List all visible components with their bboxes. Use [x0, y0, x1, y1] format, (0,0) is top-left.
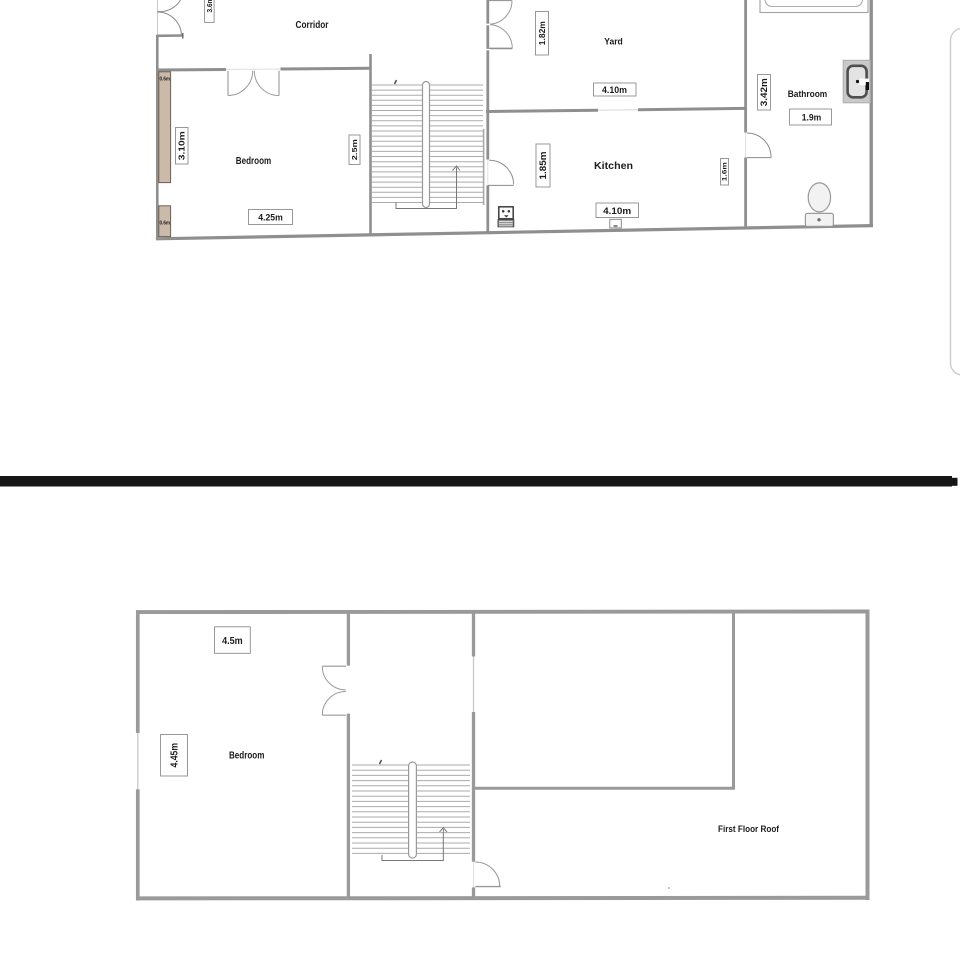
svg-text:1.6m: 1.6m	[723, 162, 729, 181]
svg-text:1.85m: 1.85m	[538, 152, 548, 180]
svg-text:Bedroom: Bedroom	[236, 156, 272, 167]
svg-text:2.5m: 2.5m	[352, 139, 359, 160]
svg-text:4.10m: 4.10m	[602, 85, 627, 95]
svg-text:3.42m: 3.42m	[759, 78, 769, 106]
svg-text:Kitchen: Kitchen	[594, 161, 633, 172]
svg-text:4.45m: 4.45m	[170, 743, 181, 768]
svg-text:First Floor Roof: First Floor Roof	[718, 824, 780, 835]
svg-text:4.10m: 4.10m	[603, 206, 631, 217]
svg-text:Bathroom: Bathroom	[788, 89, 828, 100]
svg-text:4.25m: 4.25m	[258, 212, 283, 223]
svg-text:0.6m: 0.6m	[160, 77, 171, 83]
svg-text:3.10m: 3.10m	[177, 131, 187, 161]
svg-text:Corridor: Corridor	[296, 20, 329, 31]
svg-text:1.9m: 1.9m	[802, 113, 822, 123]
svg-text:Bedroom: Bedroom	[229, 751, 265, 762]
svg-text:Yard: Yard	[604, 37, 623, 47]
svg-text:3.6m: 3.6m	[205, 0, 214, 13]
svg-text:4.5m: 4.5m	[222, 636, 243, 647]
svg-text:1.82m: 1.82m	[537, 21, 547, 45]
svg-text:0.6m: 0.6m	[160, 221, 171, 227]
